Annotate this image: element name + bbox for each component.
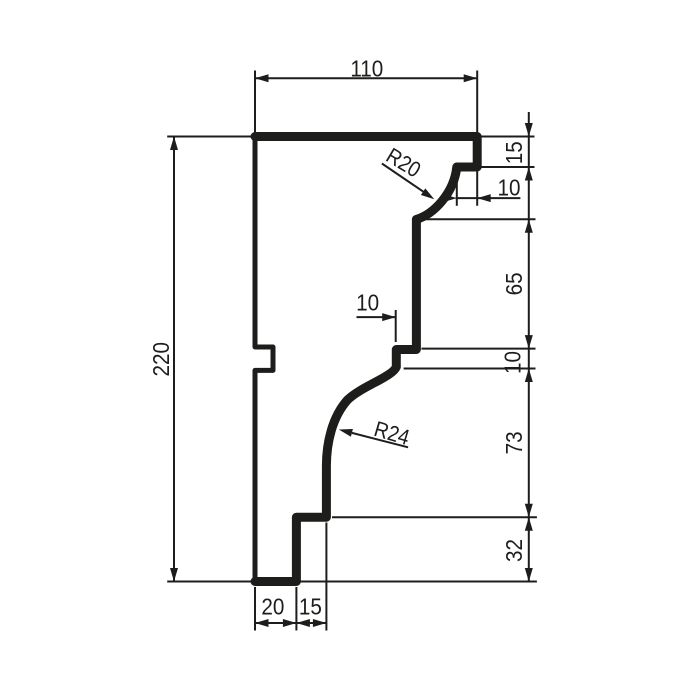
svg-text:20: 20: [261, 593, 284, 620]
svg-text:65: 65: [501, 272, 528, 295]
svg-text:32: 32: [501, 539, 528, 562]
svg-text:10: 10: [499, 351, 526, 374]
svg-text:220: 220: [148, 342, 175, 376]
svg-text:10: 10: [497, 174, 520, 201]
svg-text:110: 110: [350, 55, 383, 82]
svg-text:15: 15: [299, 593, 322, 620]
svg-text:73: 73: [501, 431, 528, 454]
svg-text:15: 15: [501, 141, 528, 164]
svg-text:10: 10: [356, 289, 379, 316]
